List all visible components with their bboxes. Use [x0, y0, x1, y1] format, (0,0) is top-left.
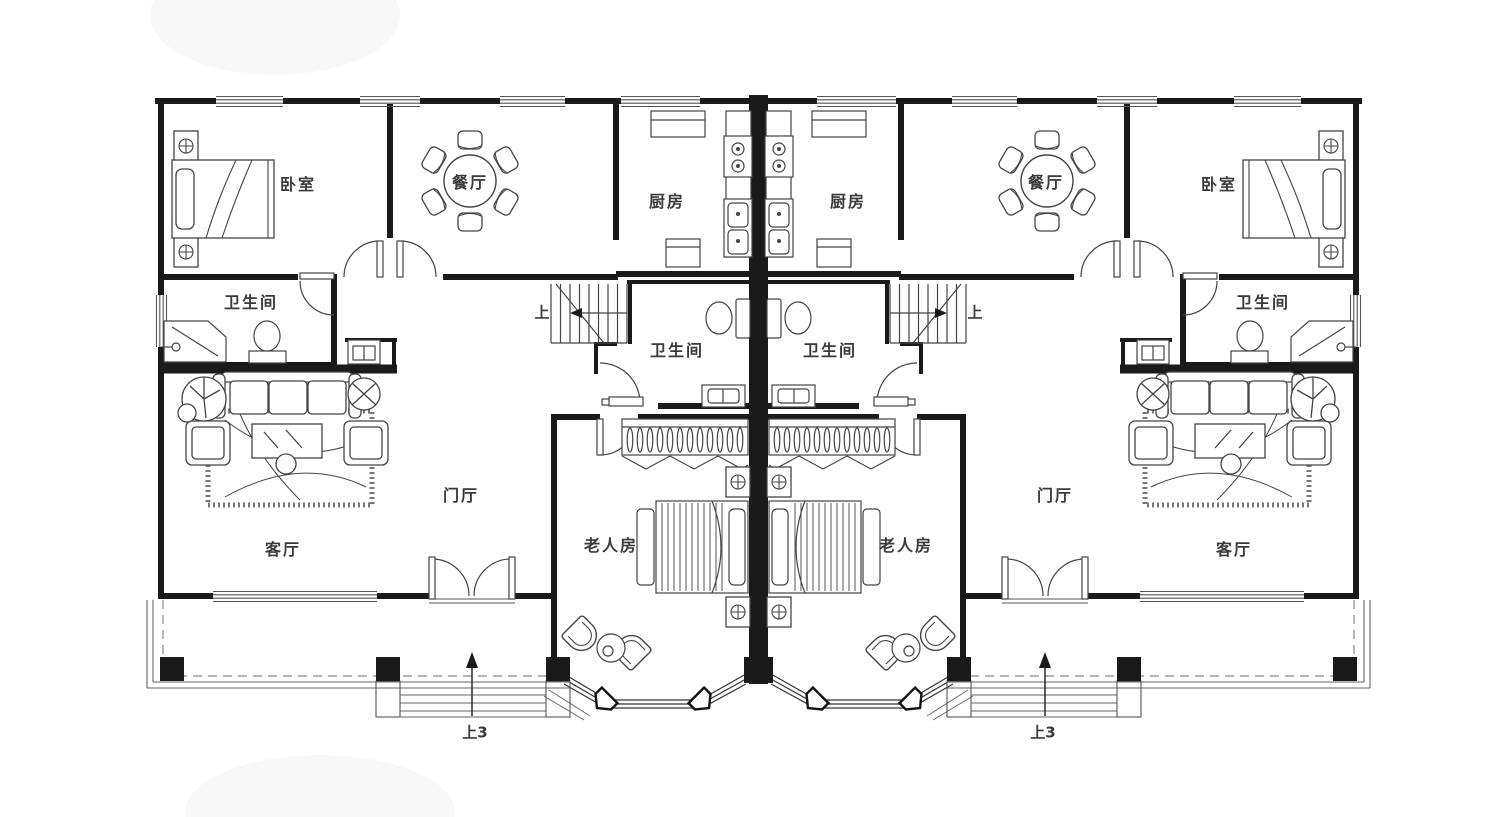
room-label-bedroom-right: 卧室: [1201, 171, 1237, 195]
room-label-bathroom-upper-left: 卫生间: [224, 289, 278, 313]
floor-plan-drawing: [0, 0, 1500, 817]
room-label-living-left: 客厅: [265, 536, 301, 560]
room-label-elderly-right: 老人房: [879, 532, 933, 556]
room-label-dining-right: 餐厅: [1028, 169, 1064, 193]
room-label-foyer-left: 门厅: [443, 482, 479, 506]
room-label-bathroom-upper-right: 卫生间: [1236, 289, 1290, 313]
floor-plan: 卧室 餐厅 厨房 卫生间 卫生间 上 门厅 客厅 老人房 上3 卧室 餐厅 厨房…: [0, 0, 1500, 817]
room-label-kitchen-left: 厨房: [649, 188, 685, 212]
steps-label-right: 上3: [1030, 722, 1055, 743]
room-label-dining-left: 餐厅: [452, 169, 488, 193]
stairs-label-left: 上: [534, 302, 549, 323]
room-label-bathroom-center-right: 卫生间: [803, 337, 857, 361]
room-label-bathroom-center-left: 卫生间: [650, 337, 704, 361]
room-label-foyer-right: 门厅: [1037, 482, 1073, 506]
room-label-kitchen-right: 厨房: [830, 188, 866, 212]
steps-label-left: 上3: [462, 722, 487, 743]
room-label-elderly-left: 老人房: [584, 532, 638, 556]
room-label-living-right: 客厅: [1216, 536, 1252, 560]
room-label-bedroom-left: 卧室: [280, 171, 316, 195]
stairs-label-right: 上: [967, 302, 982, 323]
